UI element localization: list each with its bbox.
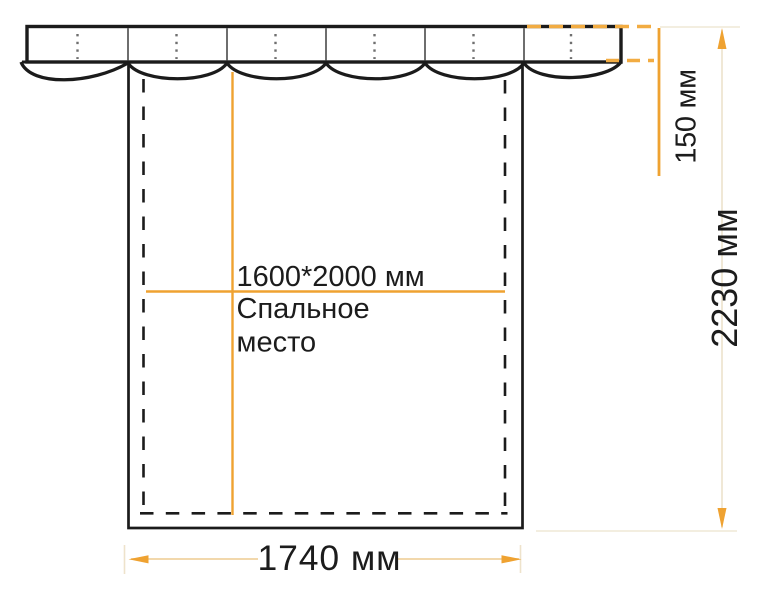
svg-text:место: место — [237, 327, 317, 359]
svg-text:1740 мм: 1740 мм — [258, 538, 402, 578]
svg-text:1600*2000 мм: 1600*2000 мм — [237, 261, 425, 293]
svg-text:2230 мм: 2230 мм — [704, 208, 745, 348]
svg-text:Спальное: Спальное — [237, 293, 370, 325]
svg-text:150 мм: 150 мм — [671, 69, 703, 164]
